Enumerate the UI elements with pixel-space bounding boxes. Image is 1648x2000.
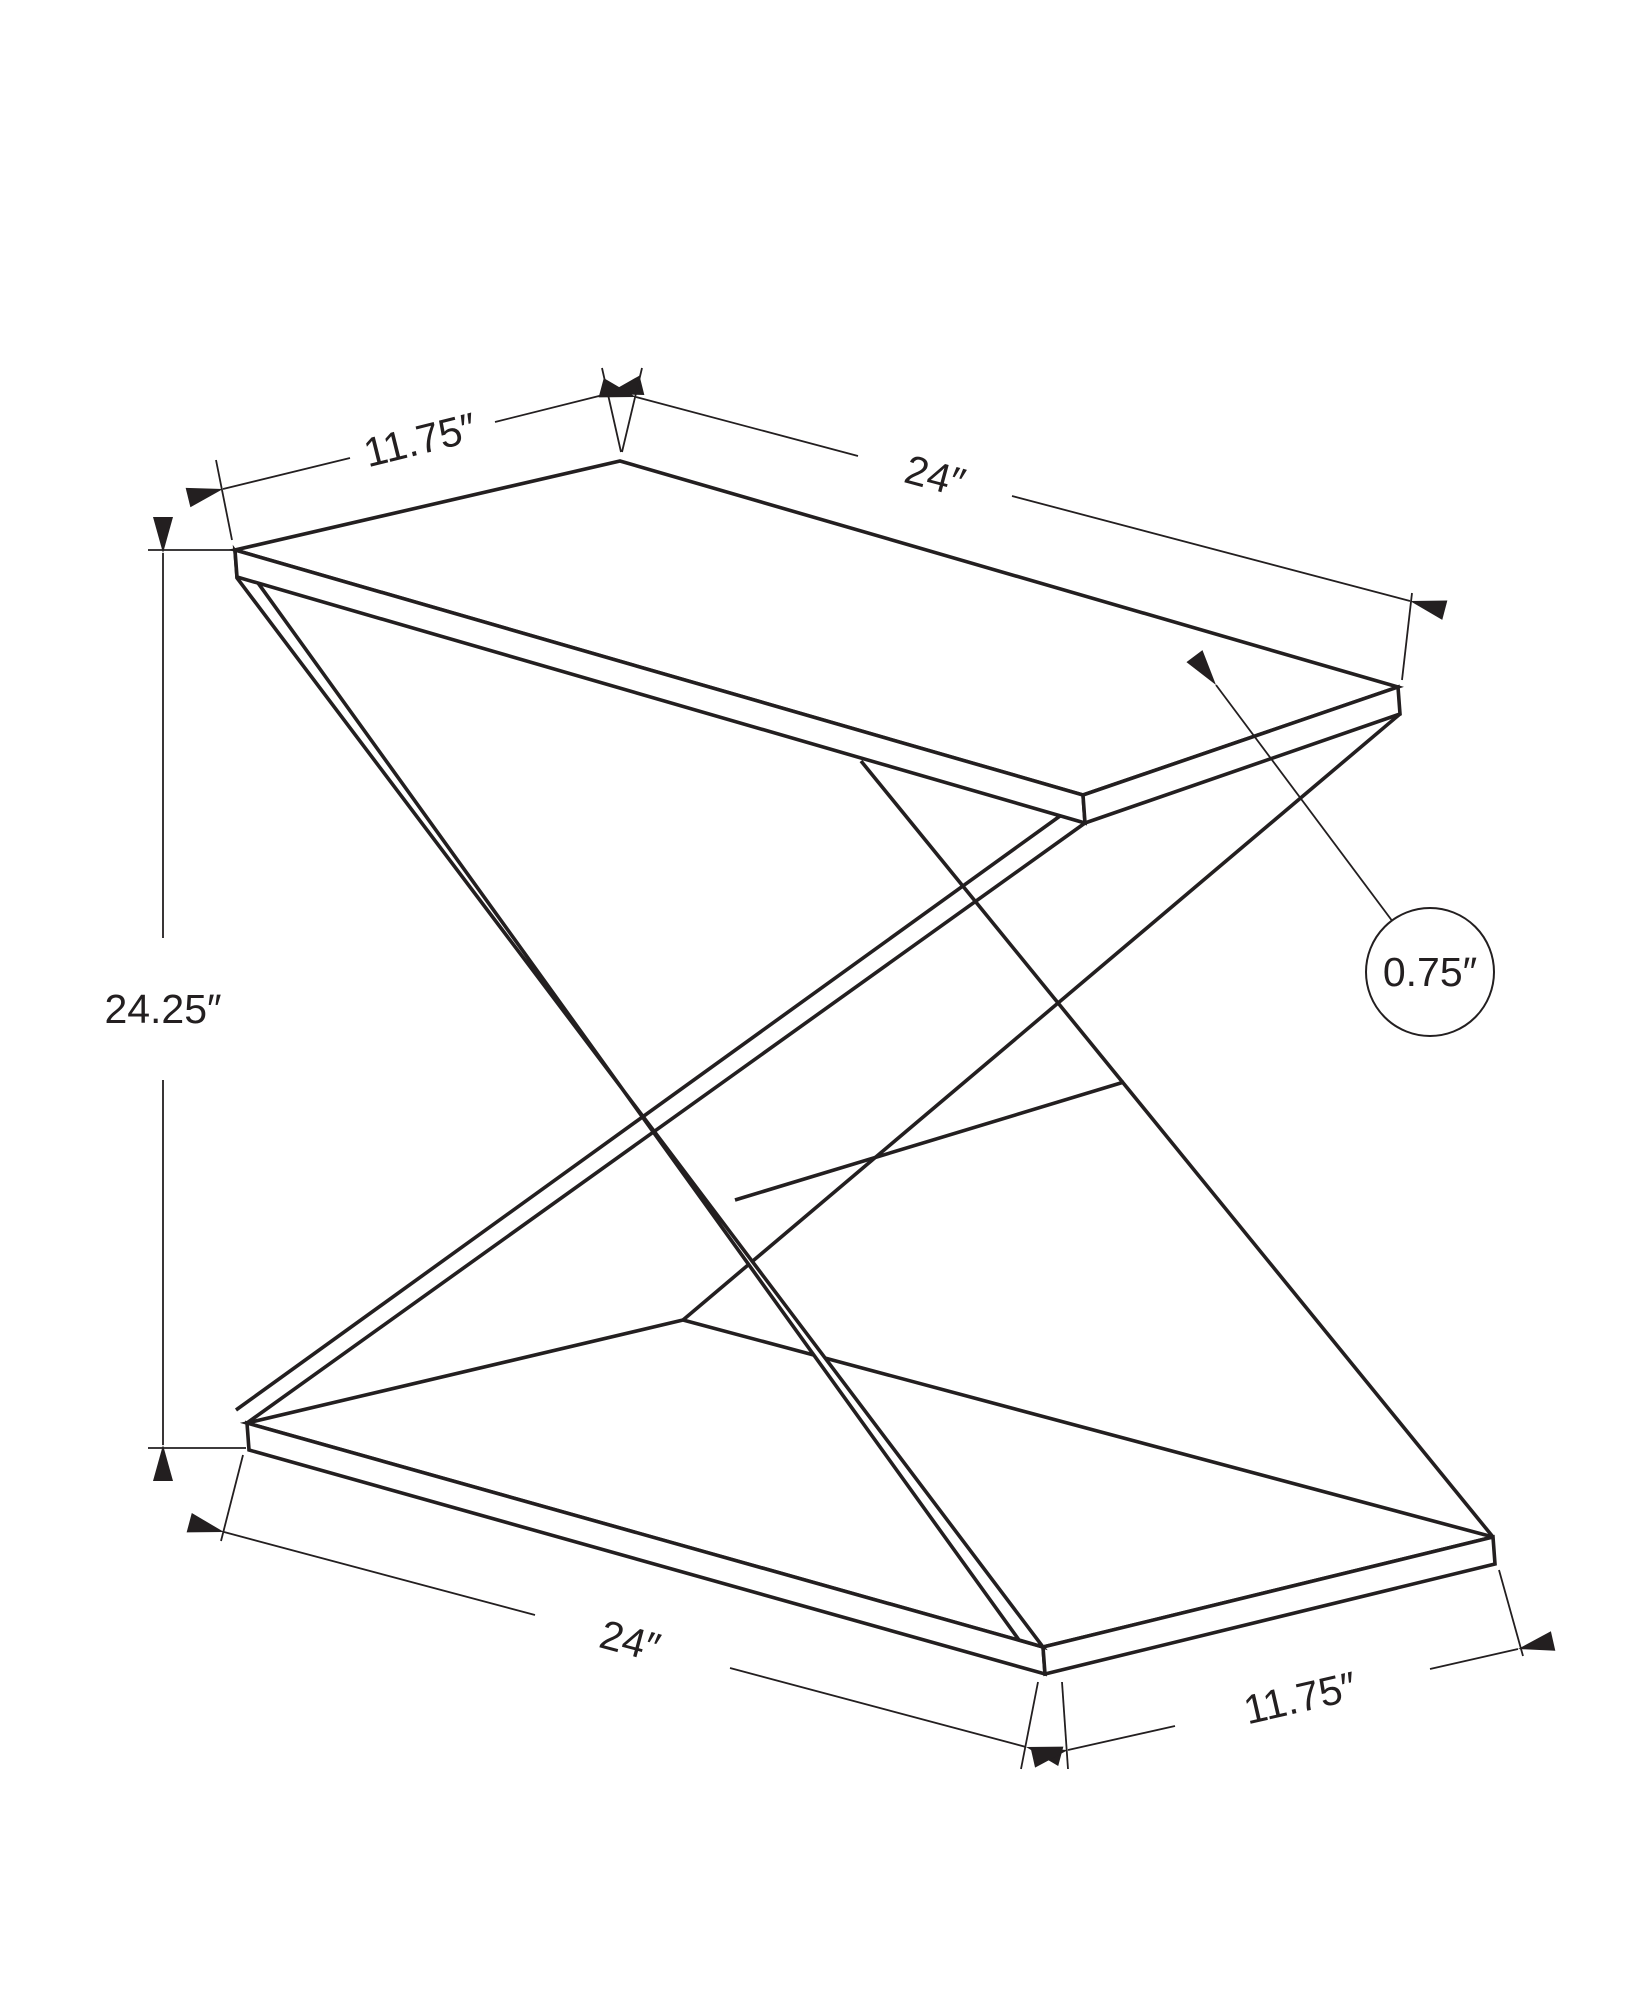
dimension-label-base-width: 24″ — [595, 1611, 665, 1671]
dimension-label-base-depth: 11.75″ — [1239, 1663, 1361, 1733]
dimension-line — [495, 394, 607, 422]
dimension-diagram-page: 11.75″ 24″ 24.25″ 0.75″ — [0, 0, 1648, 2000]
middle-shelf-back-edge — [735, 1082, 1124, 1200]
tabletop-slab — [235, 461, 1400, 823]
dimension-label-thickness: 0.75″ — [1383, 949, 1477, 995]
dimension-label-height: 24.25″ — [104, 986, 221, 1032]
dimension-height: 24.25″ — [104, 550, 246, 1448]
extension-line — [1402, 593, 1412, 680]
dimension-line — [636, 397, 858, 456]
front-right-x-member-inner-edge — [236, 816, 1060, 1410]
extension-line — [216, 460, 232, 540]
extension-line — [622, 368, 642, 452]
dimension-label-top-width: 24″ — [900, 446, 970, 506]
extension-line — [221, 1455, 243, 1541]
extension-line — [1062, 1682, 1068, 1769]
base-slab — [247, 1320, 1495, 1674]
dimension-line — [224, 1532, 535, 1615]
extension-line — [1021, 1682, 1038, 1769]
extension-line — [602, 368, 621, 452]
dimension-label-top-depth: 11.75″ — [359, 404, 481, 476]
accent-table-dimension-drawing: 11.75″ 24″ 24.25″ 0.75″ — [0, 0, 1648, 2000]
dimension-line — [1068, 1726, 1175, 1750]
dimension-line — [223, 458, 350, 489]
dimension-line — [730, 1668, 1026, 1747]
extension-line — [1499, 1570, 1523, 1656]
dimension-line — [1430, 1649, 1518, 1669]
dimension-line — [1012, 496, 1410, 601]
